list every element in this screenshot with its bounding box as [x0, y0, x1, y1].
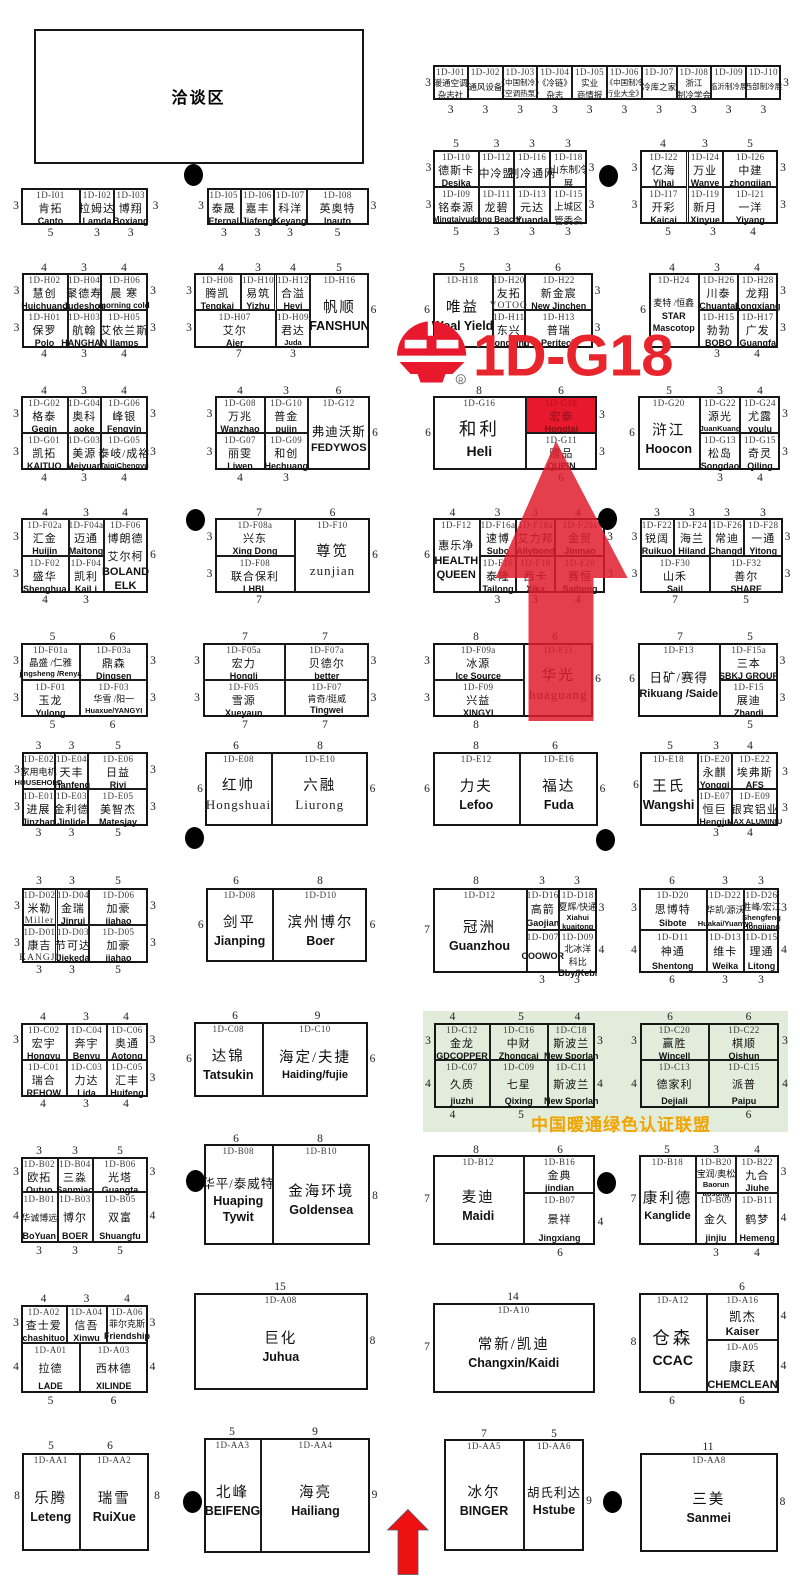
svg-text:R: R [458, 377, 463, 384]
